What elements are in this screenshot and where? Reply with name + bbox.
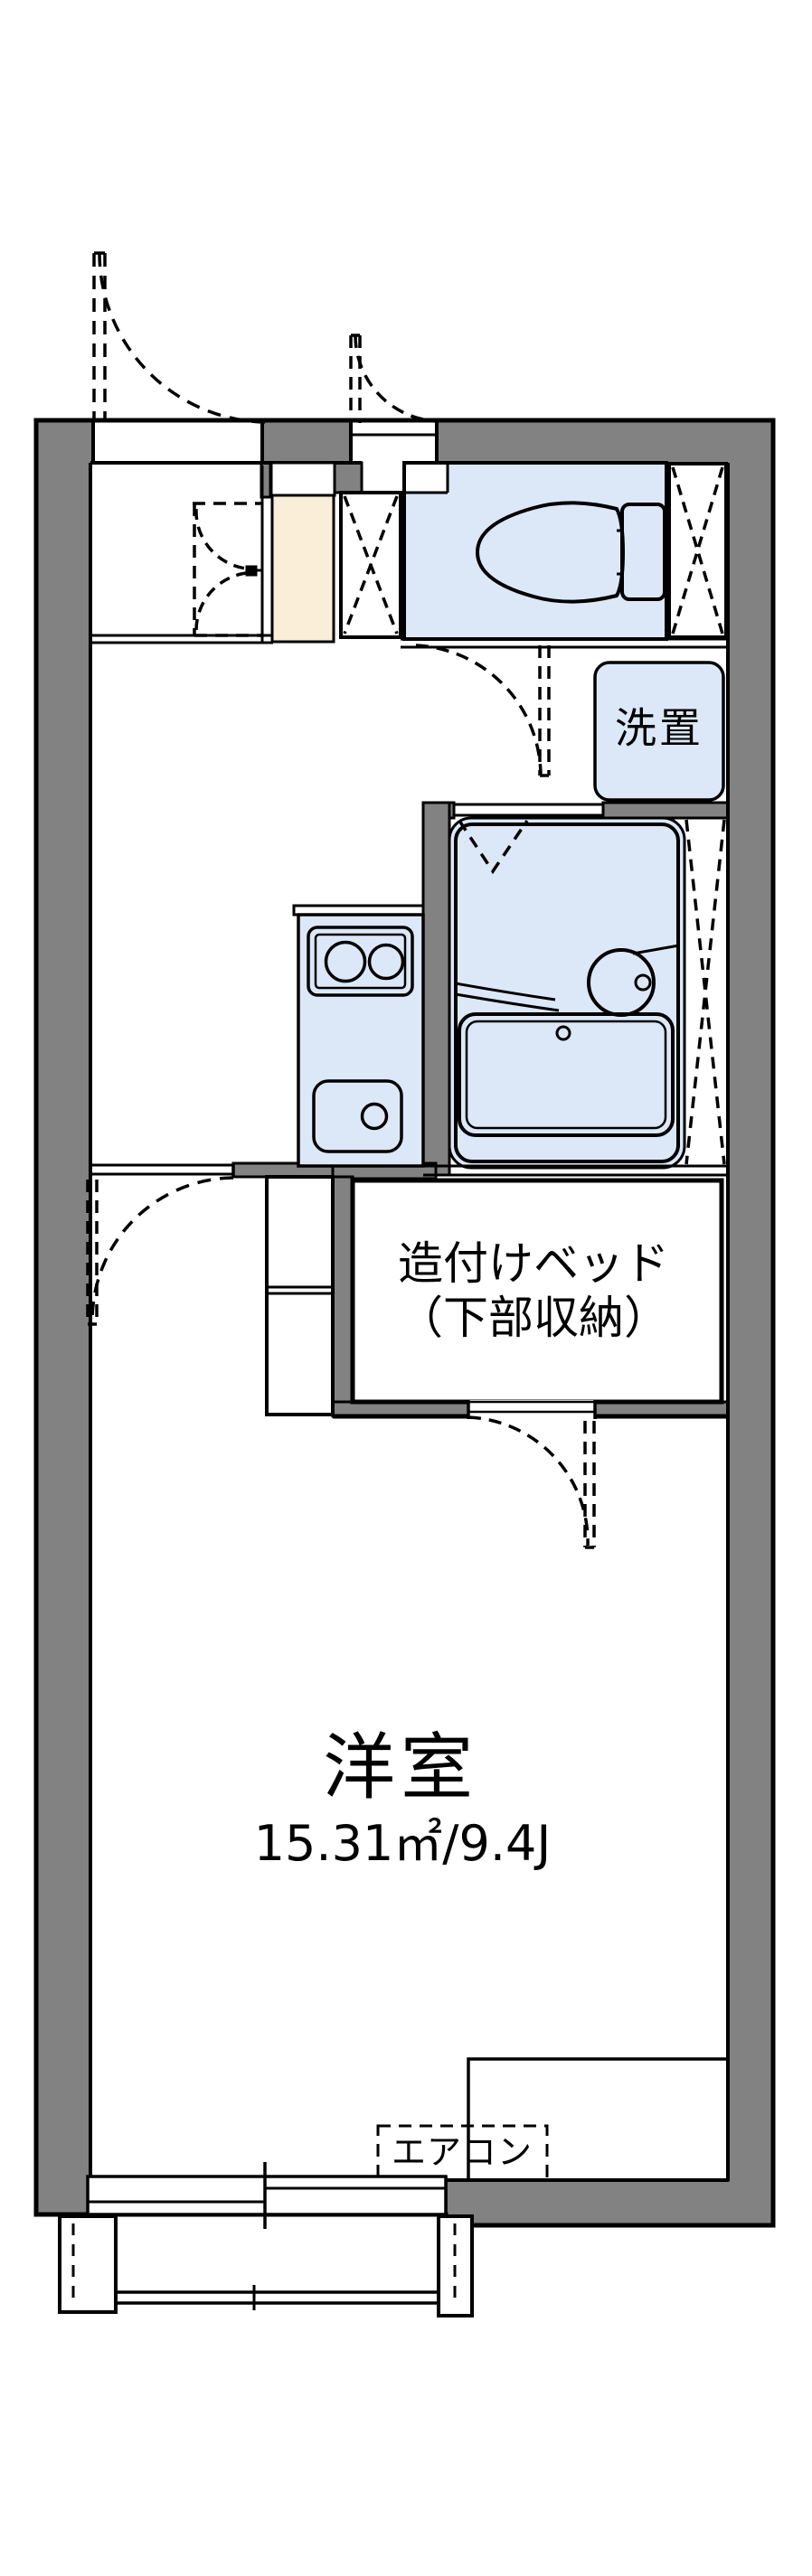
built-in-bed-label: 造付けベッド （下部収納）: [398, 1236, 669, 1345]
western-room-area: 15.31㎡/9.4J: [254, 1816, 552, 1872]
bed-room-door-swing: [468, 1417, 594, 1547]
balcony: [60, 2216, 472, 2316]
crossed-box-icon: [686, 820, 724, 1164]
washer-storage-label: 洗置: [615, 705, 703, 753]
western-room-name: 洋室: [323, 1726, 478, 1810]
shelf-unit: [267, 1177, 333, 1415]
built-in-bed-label-line1: 造付けベッド: [398, 1236, 669, 1291]
floor-plan: 洗置 造付けベッド （下部収納） 洋室 15.31㎡/9.4J エアコン: [0, 0, 812, 2576]
hallway-door-swing: [88, 1163, 233, 1324]
meter-box-left: [341, 493, 401, 637]
toilet-door-swing: [416, 645, 549, 776]
genkan-floor: [271, 463, 335, 642]
air-conditioner-label: エアコン: [392, 2133, 533, 2173]
bathroom: [423, 804, 728, 1175]
genkan-step: [271, 463, 335, 495]
entrance-door-swing: [94, 253, 265, 422]
built-in-bed-label-line2: （下部収納）: [398, 1291, 669, 1345]
meterbox-door-swing: [351, 335, 437, 423]
entrance-closet-doors: [90, 465, 273, 643]
meter-box-right: [669, 464, 726, 637]
kitchen-counter: [294, 906, 423, 1166]
